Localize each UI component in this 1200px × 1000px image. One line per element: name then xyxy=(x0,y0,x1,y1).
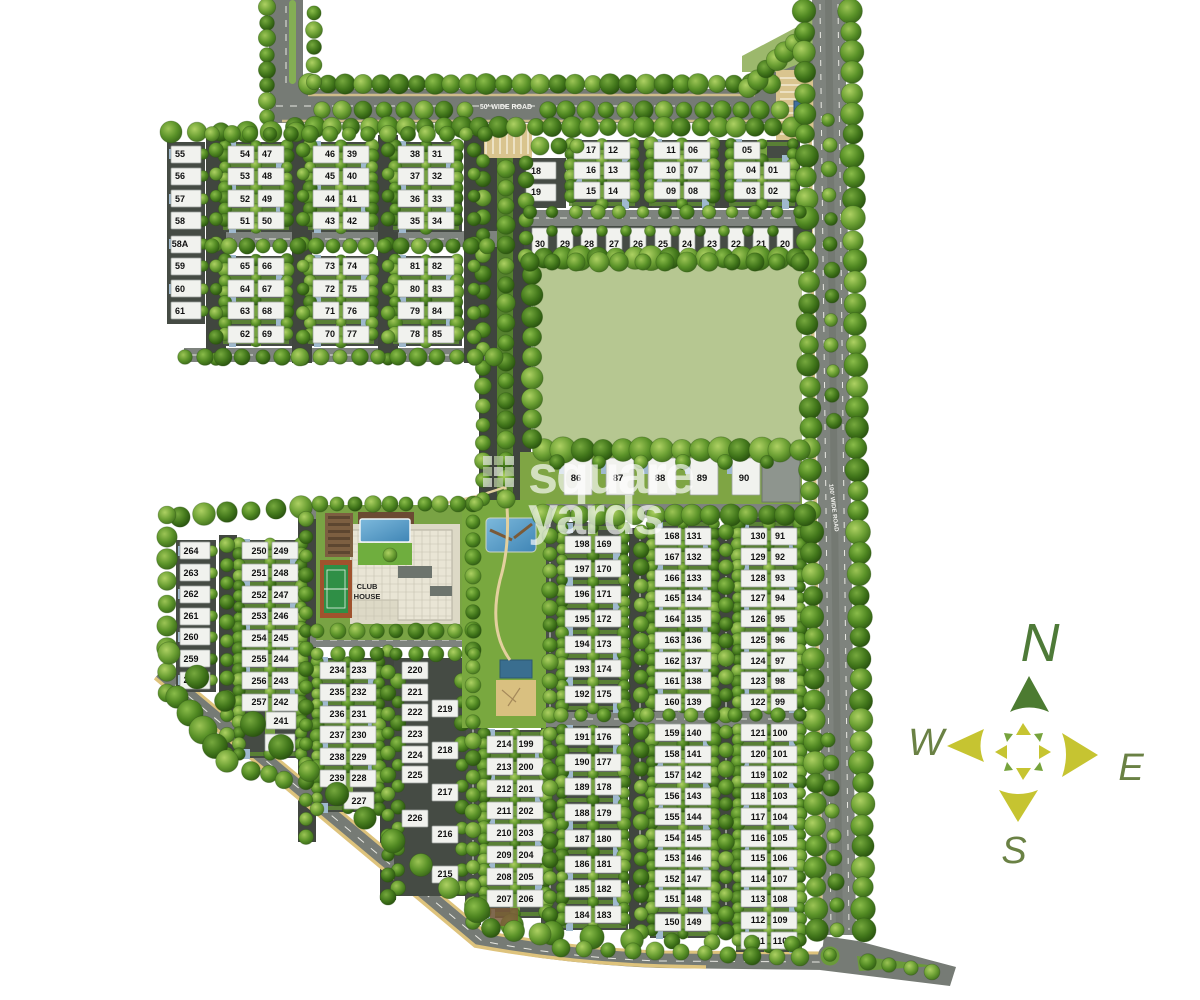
svg-text:190: 190 xyxy=(574,757,589,767)
svg-text:31: 31 xyxy=(432,149,442,159)
svg-text:85: 85 xyxy=(432,329,442,339)
svg-text:152: 152 xyxy=(664,874,679,884)
svg-text:27: 27 xyxy=(609,239,619,249)
svg-text:49: 49 xyxy=(262,194,272,204)
svg-text:137: 137 xyxy=(686,656,701,666)
svg-text:259: 259 xyxy=(183,654,198,664)
svg-text:131: 131 xyxy=(686,531,701,541)
svg-text:182: 182 xyxy=(596,884,611,894)
svg-text:92: 92 xyxy=(775,552,785,562)
svg-text:207: 207 xyxy=(496,894,511,904)
svg-text:79: 79 xyxy=(410,306,420,316)
svg-text:235: 235 xyxy=(329,687,344,697)
svg-text:262: 262 xyxy=(183,589,198,599)
svg-text:45: 45 xyxy=(325,171,335,181)
svg-text:77: 77 xyxy=(347,329,357,339)
svg-text:160: 160 xyxy=(664,697,679,707)
svg-text:122: 122 xyxy=(750,697,765,707)
svg-text:218: 218 xyxy=(437,745,452,755)
svg-text:250: 250 xyxy=(251,546,266,556)
svg-text:162: 162 xyxy=(664,656,679,666)
svg-text:161: 161 xyxy=(664,676,679,686)
svg-text:191: 191 xyxy=(574,732,589,742)
svg-text:256: 256 xyxy=(251,676,266,686)
svg-text:72: 72 xyxy=(325,284,335,294)
svg-text:140: 140 xyxy=(686,728,701,738)
svg-text:174: 174 xyxy=(596,664,611,674)
svg-text:98: 98 xyxy=(775,676,785,686)
svg-text:44: 44 xyxy=(325,194,335,204)
svg-text:76: 76 xyxy=(347,306,357,316)
svg-text:75: 75 xyxy=(347,284,357,294)
svg-text:81: 81 xyxy=(410,261,420,271)
svg-text:18: 18 xyxy=(531,166,541,176)
svg-text:115: 115 xyxy=(751,853,766,863)
svg-text:78: 78 xyxy=(410,329,420,339)
svg-text:67: 67 xyxy=(262,284,272,294)
svg-text:35: 35 xyxy=(410,216,420,226)
svg-text:179: 179 xyxy=(596,808,611,818)
svg-text:58A: 58A xyxy=(172,239,189,249)
svg-text:183: 183 xyxy=(596,910,611,920)
svg-text:117: 117 xyxy=(751,812,766,822)
svg-text:83: 83 xyxy=(432,284,442,294)
svg-text:151: 151 xyxy=(664,894,679,904)
svg-text:142: 142 xyxy=(686,770,701,780)
svg-text:222: 222 xyxy=(407,707,422,717)
svg-text:100: 100 xyxy=(772,728,787,738)
svg-text:253: 253 xyxy=(251,611,266,621)
svg-text:219: 219 xyxy=(437,704,452,714)
svg-text:60: 60 xyxy=(175,284,185,294)
svg-text:41: 41 xyxy=(347,194,357,204)
svg-text:W: W xyxy=(908,722,947,764)
svg-text:17: 17 xyxy=(586,145,596,155)
svg-text:128: 128 xyxy=(750,573,765,583)
svg-text:32: 32 xyxy=(432,171,442,181)
svg-text:02: 02 xyxy=(768,186,778,196)
svg-text:05: 05 xyxy=(742,145,752,155)
svg-text:40: 40 xyxy=(347,171,357,181)
svg-text:154: 154 xyxy=(664,833,679,843)
svg-text:187: 187 xyxy=(574,834,589,844)
svg-text:133: 133 xyxy=(686,573,701,583)
svg-text:153: 153 xyxy=(664,853,679,863)
svg-text:58: 58 xyxy=(175,216,185,226)
svg-text:249: 249 xyxy=(273,546,288,556)
svg-text:53: 53 xyxy=(240,171,250,181)
svg-text:176: 176 xyxy=(596,732,611,742)
svg-text:47: 47 xyxy=(262,149,272,159)
svg-text:193: 193 xyxy=(574,664,589,674)
svg-text:167: 167 xyxy=(664,552,679,562)
svg-text:185: 185 xyxy=(574,884,589,894)
svg-text:245: 245 xyxy=(273,633,288,643)
svg-text:84: 84 xyxy=(432,306,442,316)
svg-text:204: 204 xyxy=(518,850,533,860)
svg-text:251: 251 xyxy=(251,568,266,578)
svg-text:168: 168 xyxy=(664,531,679,541)
svg-text:134: 134 xyxy=(686,593,701,603)
svg-text:189: 189 xyxy=(574,782,589,792)
svg-text:143: 143 xyxy=(686,791,701,801)
svg-text:239: 239 xyxy=(329,773,344,783)
svg-text:93: 93 xyxy=(775,573,785,583)
svg-text:224: 224 xyxy=(407,750,422,760)
svg-text:50: 50 xyxy=(262,216,272,226)
svg-text:64: 64 xyxy=(240,284,250,294)
svg-text:96: 96 xyxy=(775,635,785,645)
svg-text:227: 227 xyxy=(351,796,366,806)
svg-text:S: S xyxy=(1001,830,1026,872)
svg-text:57: 57 xyxy=(175,194,185,204)
svg-text:99: 99 xyxy=(775,697,785,707)
svg-text:N: N xyxy=(1021,613,1061,673)
svg-text:226: 226 xyxy=(407,813,422,823)
svg-text:147: 147 xyxy=(686,874,701,884)
svg-text:199: 199 xyxy=(518,739,533,749)
svg-text:237: 237 xyxy=(329,730,344,740)
svg-text:yards: yards xyxy=(528,486,662,546)
svg-text:195: 195 xyxy=(574,614,589,624)
svg-text:257: 257 xyxy=(251,697,266,707)
svg-text:171: 171 xyxy=(596,589,611,599)
svg-text:205: 205 xyxy=(518,872,533,882)
svg-text:206: 206 xyxy=(518,894,533,904)
svg-text:217: 217 xyxy=(437,787,452,797)
svg-text:129: 129 xyxy=(750,552,765,562)
svg-text:197: 197 xyxy=(574,564,589,574)
svg-text:175: 175 xyxy=(596,689,611,699)
svg-text:34: 34 xyxy=(432,216,442,226)
svg-text:252: 252 xyxy=(251,590,266,600)
svg-text:95: 95 xyxy=(775,614,785,624)
svg-text:213: 213 xyxy=(496,762,511,772)
svg-text:14: 14 xyxy=(608,186,618,196)
svg-text:120: 120 xyxy=(750,749,765,759)
svg-text:248: 248 xyxy=(273,568,288,578)
svg-text:04: 04 xyxy=(746,165,756,175)
svg-text:06: 06 xyxy=(688,145,698,155)
svg-text:101: 101 xyxy=(772,749,787,759)
svg-text:94: 94 xyxy=(775,593,785,603)
svg-text:211: 211 xyxy=(497,806,512,816)
svg-text:229: 229 xyxy=(351,752,366,762)
svg-text:09: 09 xyxy=(666,186,676,196)
svg-text:38: 38 xyxy=(410,149,420,159)
svg-text:24: 24 xyxy=(682,239,692,249)
svg-text:263: 263 xyxy=(183,568,198,578)
svg-text:42: 42 xyxy=(347,216,357,226)
svg-text:119: 119 xyxy=(751,770,766,780)
svg-text:157: 157 xyxy=(664,770,679,780)
svg-text:50' WIDE ROAD: 50' WIDE ROAD xyxy=(480,104,532,111)
svg-text:148: 148 xyxy=(686,894,701,904)
svg-text:184: 184 xyxy=(574,910,589,920)
svg-text:114: 114 xyxy=(751,874,766,884)
svg-text:CLUB: CLUB xyxy=(357,582,378,591)
svg-text:108: 108 xyxy=(772,894,787,904)
svg-text:109: 109 xyxy=(772,915,787,925)
svg-text:74: 74 xyxy=(347,261,357,271)
svg-text:104: 104 xyxy=(772,812,787,822)
svg-text:139: 139 xyxy=(686,697,701,707)
svg-text:HOUSE: HOUSE xyxy=(354,592,381,601)
svg-text:89: 89 xyxy=(697,473,708,484)
svg-text:30: 30 xyxy=(535,239,545,249)
svg-text:123: 123 xyxy=(750,676,765,686)
svg-text:37: 37 xyxy=(410,171,420,181)
svg-text:223: 223 xyxy=(407,729,422,739)
svg-text:231: 231 xyxy=(351,709,366,719)
svg-text:188: 188 xyxy=(574,808,589,818)
svg-text:130: 130 xyxy=(750,531,765,541)
svg-text:138: 138 xyxy=(686,676,701,686)
svg-text:46: 46 xyxy=(325,149,335,159)
svg-text:36: 36 xyxy=(410,194,420,204)
svg-text:13: 13 xyxy=(608,165,618,175)
svg-text:166: 166 xyxy=(664,573,679,583)
svg-text:61: 61 xyxy=(175,306,185,316)
svg-text:181: 181 xyxy=(596,859,611,869)
svg-text:55: 55 xyxy=(175,149,185,159)
svg-text:33: 33 xyxy=(432,194,442,204)
svg-text:71: 71 xyxy=(325,306,335,316)
svg-text:238: 238 xyxy=(329,752,344,762)
svg-text:234: 234 xyxy=(329,665,344,675)
svg-text:192: 192 xyxy=(574,689,589,699)
svg-text:180: 180 xyxy=(596,834,611,844)
svg-text:82: 82 xyxy=(432,261,442,271)
svg-text:106: 106 xyxy=(772,853,787,863)
svg-text:241: 241 xyxy=(273,716,288,726)
svg-text:66: 66 xyxy=(262,261,272,271)
svg-text:159: 159 xyxy=(664,728,679,738)
svg-text:173: 173 xyxy=(596,639,611,649)
svg-text:233: 233 xyxy=(351,665,366,675)
svg-text:232: 232 xyxy=(351,687,366,697)
svg-text:210: 210 xyxy=(496,828,511,838)
svg-text:214: 214 xyxy=(496,739,511,749)
svg-text:73: 73 xyxy=(325,261,335,271)
svg-text:97: 97 xyxy=(775,656,785,666)
svg-text:260: 260 xyxy=(183,632,198,642)
svg-text:155: 155 xyxy=(664,812,679,822)
svg-text:39: 39 xyxy=(347,149,357,159)
svg-text:246: 246 xyxy=(273,611,288,621)
svg-text:236: 236 xyxy=(329,709,344,719)
svg-text:255: 255 xyxy=(251,654,266,664)
svg-text:165: 165 xyxy=(664,593,679,603)
svg-text:62: 62 xyxy=(240,329,250,339)
svg-text:200: 200 xyxy=(518,762,533,772)
svg-text:216: 216 xyxy=(437,829,452,839)
svg-text:247: 247 xyxy=(273,590,288,600)
svg-text:113: 113 xyxy=(751,894,766,904)
svg-text:107: 107 xyxy=(772,874,787,884)
svg-text:91: 91 xyxy=(775,531,785,541)
svg-text:156: 156 xyxy=(664,791,679,801)
svg-text:212: 212 xyxy=(496,784,511,794)
svg-text:220: 220 xyxy=(407,665,422,675)
svg-text:56: 56 xyxy=(175,171,185,181)
svg-text:15: 15 xyxy=(586,186,596,196)
svg-text:63: 63 xyxy=(240,306,250,316)
svg-text:121: 121 xyxy=(750,728,765,738)
svg-text:146: 146 xyxy=(686,853,701,863)
svg-text:202: 202 xyxy=(518,806,533,816)
svg-text:242: 242 xyxy=(273,697,288,707)
svg-text:65: 65 xyxy=(240,261,250,271)
svg-text:07: 07 xyxy=(688,165,698,175)
svg-text:116: 116 xyxy=(751,833,766,843)
svg-text:124: 124 xyxy=(750,656,765,666)
svg-text:08: 08 xyxy=(688,186,698,196)
svg-text:103: 103 xyxy=(772,791,787,801)
svg-text:230: 230 xyxy=(351,730,366,740)
svg-text:52: 52 xyxy=(240,194,250,204)
svg-text:172: 172 xyxy=(596,614,611,624)
svg-text:105: 105 xyxy=(772,833,787,843)
svg-text:150: 150 xyxy=(664,917,679,927)
svg-text:201: 201 xyxy=(518,784,533,794)
svg-text:136: 136 xyxy=(686,635,701,645)
svg-text:163: 163 xyxy=(664,635,679,645)
svg-text:03: 03 xyxy=(746,186,756,196)
svg-text:177: 177 xyxy=(596,757,611,767)
svg-text:196: 196 xyxy=(574,589,589,599)
svg-text:221: 221 xyxy=(407,687,422,697)
svg-text:186: 186 xyxy=(574,859,589,869)
svg-text:112: 112 xyxy=(751,915,766,925)
svg-text:164: 164 xyxy=(664,614,679,624)
svg-text:68: 68 xyxy=(262,306,272,316)
svg-text:254: 254 xyxy=(251,633,266,643)
svg-text:69: 69 xyxy=(262,329,272,339)
svg-text:90: 90 xyxy=(739,473,750,484)
svg-text:244: 244 xyxy=(273,654,288,664)
svg-text:178: 178 xyxy=(596,782,611,792)
svg-text:141: 141 xyxy=(686,749,701,759)
svg-text:225: 225 xyxy=(407,770,422,780)
svg-text:70: 70 xyxy=(325,329,335,339)
svg-text:127: 127 xyxy=(750,593,765,603)
svg-text:01: 01 xyxy=(768,165,778,175)
svg-text:170: 170 xyxy=(596,564,611,574)
svg-text:E: E xyxy=(1118,747,1144,789)
svg-text:132: 132 xyxy=(686,552,701,562)
svg-text:10: 10 xyxy=(666,165,676,175)
svg-text:16: 16 xyxy=(586,165,596,175)
svg-text:102: 102 xyxy=(772,770,787,780)
svg-text:149: 149 xyxy=(686,917,701,927)
svg-text:48: 48 xyxy=(262,171,272,181)
svg-text:194: 194 xyxy=(574,639,589,649)
svg-text:118: 118 xyxy=(751,791,766,801)
svg-text:209: 209 xyxy=(496,850,511,860)
svg-text:51: 51 xyxy=(240,216,250,226)
svg-text:208: 208 xyxy=(496,872,511,882)
svg-text:125: 125 xyxy=(750,635,765,645)
svg-text:80: 80 xyxy=(410,284,420,294)
svg-text:203: 203 xyxy=(518,828,533,838)
svg-text:126: 126 xyxy=(750,614,765,624)
svg-text:135: 135 xyxy=(686,614,701,624)
svg-text:144: 144 xyxy=(686,812,701,822)
svg-text:264: 264 xyxy=(183,546,198,556)
svg-text:43: 43 xyxy=(325,216,335,226)
svg-text:12: 12 xyxy=(608,145,618,155)
svg-text:11: 11 xyxy=(666,145,676,155)
svg-text:54: 54 xyxy=(240,149,250,159)
svg-text:158: 158 xyxy=(664,749,679,759)
svg-text:261: 261 xyxy=(183,611,198,621)
svg-text:59: 59 xyxy=(175,261,185,271)
svg-text:228: 228 xyxy=(351,773,366,783)
svg-text:243: 243 xyxy=(273,676,288,686)
svg-text:145: 145 xyxy=(686,833,701,843)
